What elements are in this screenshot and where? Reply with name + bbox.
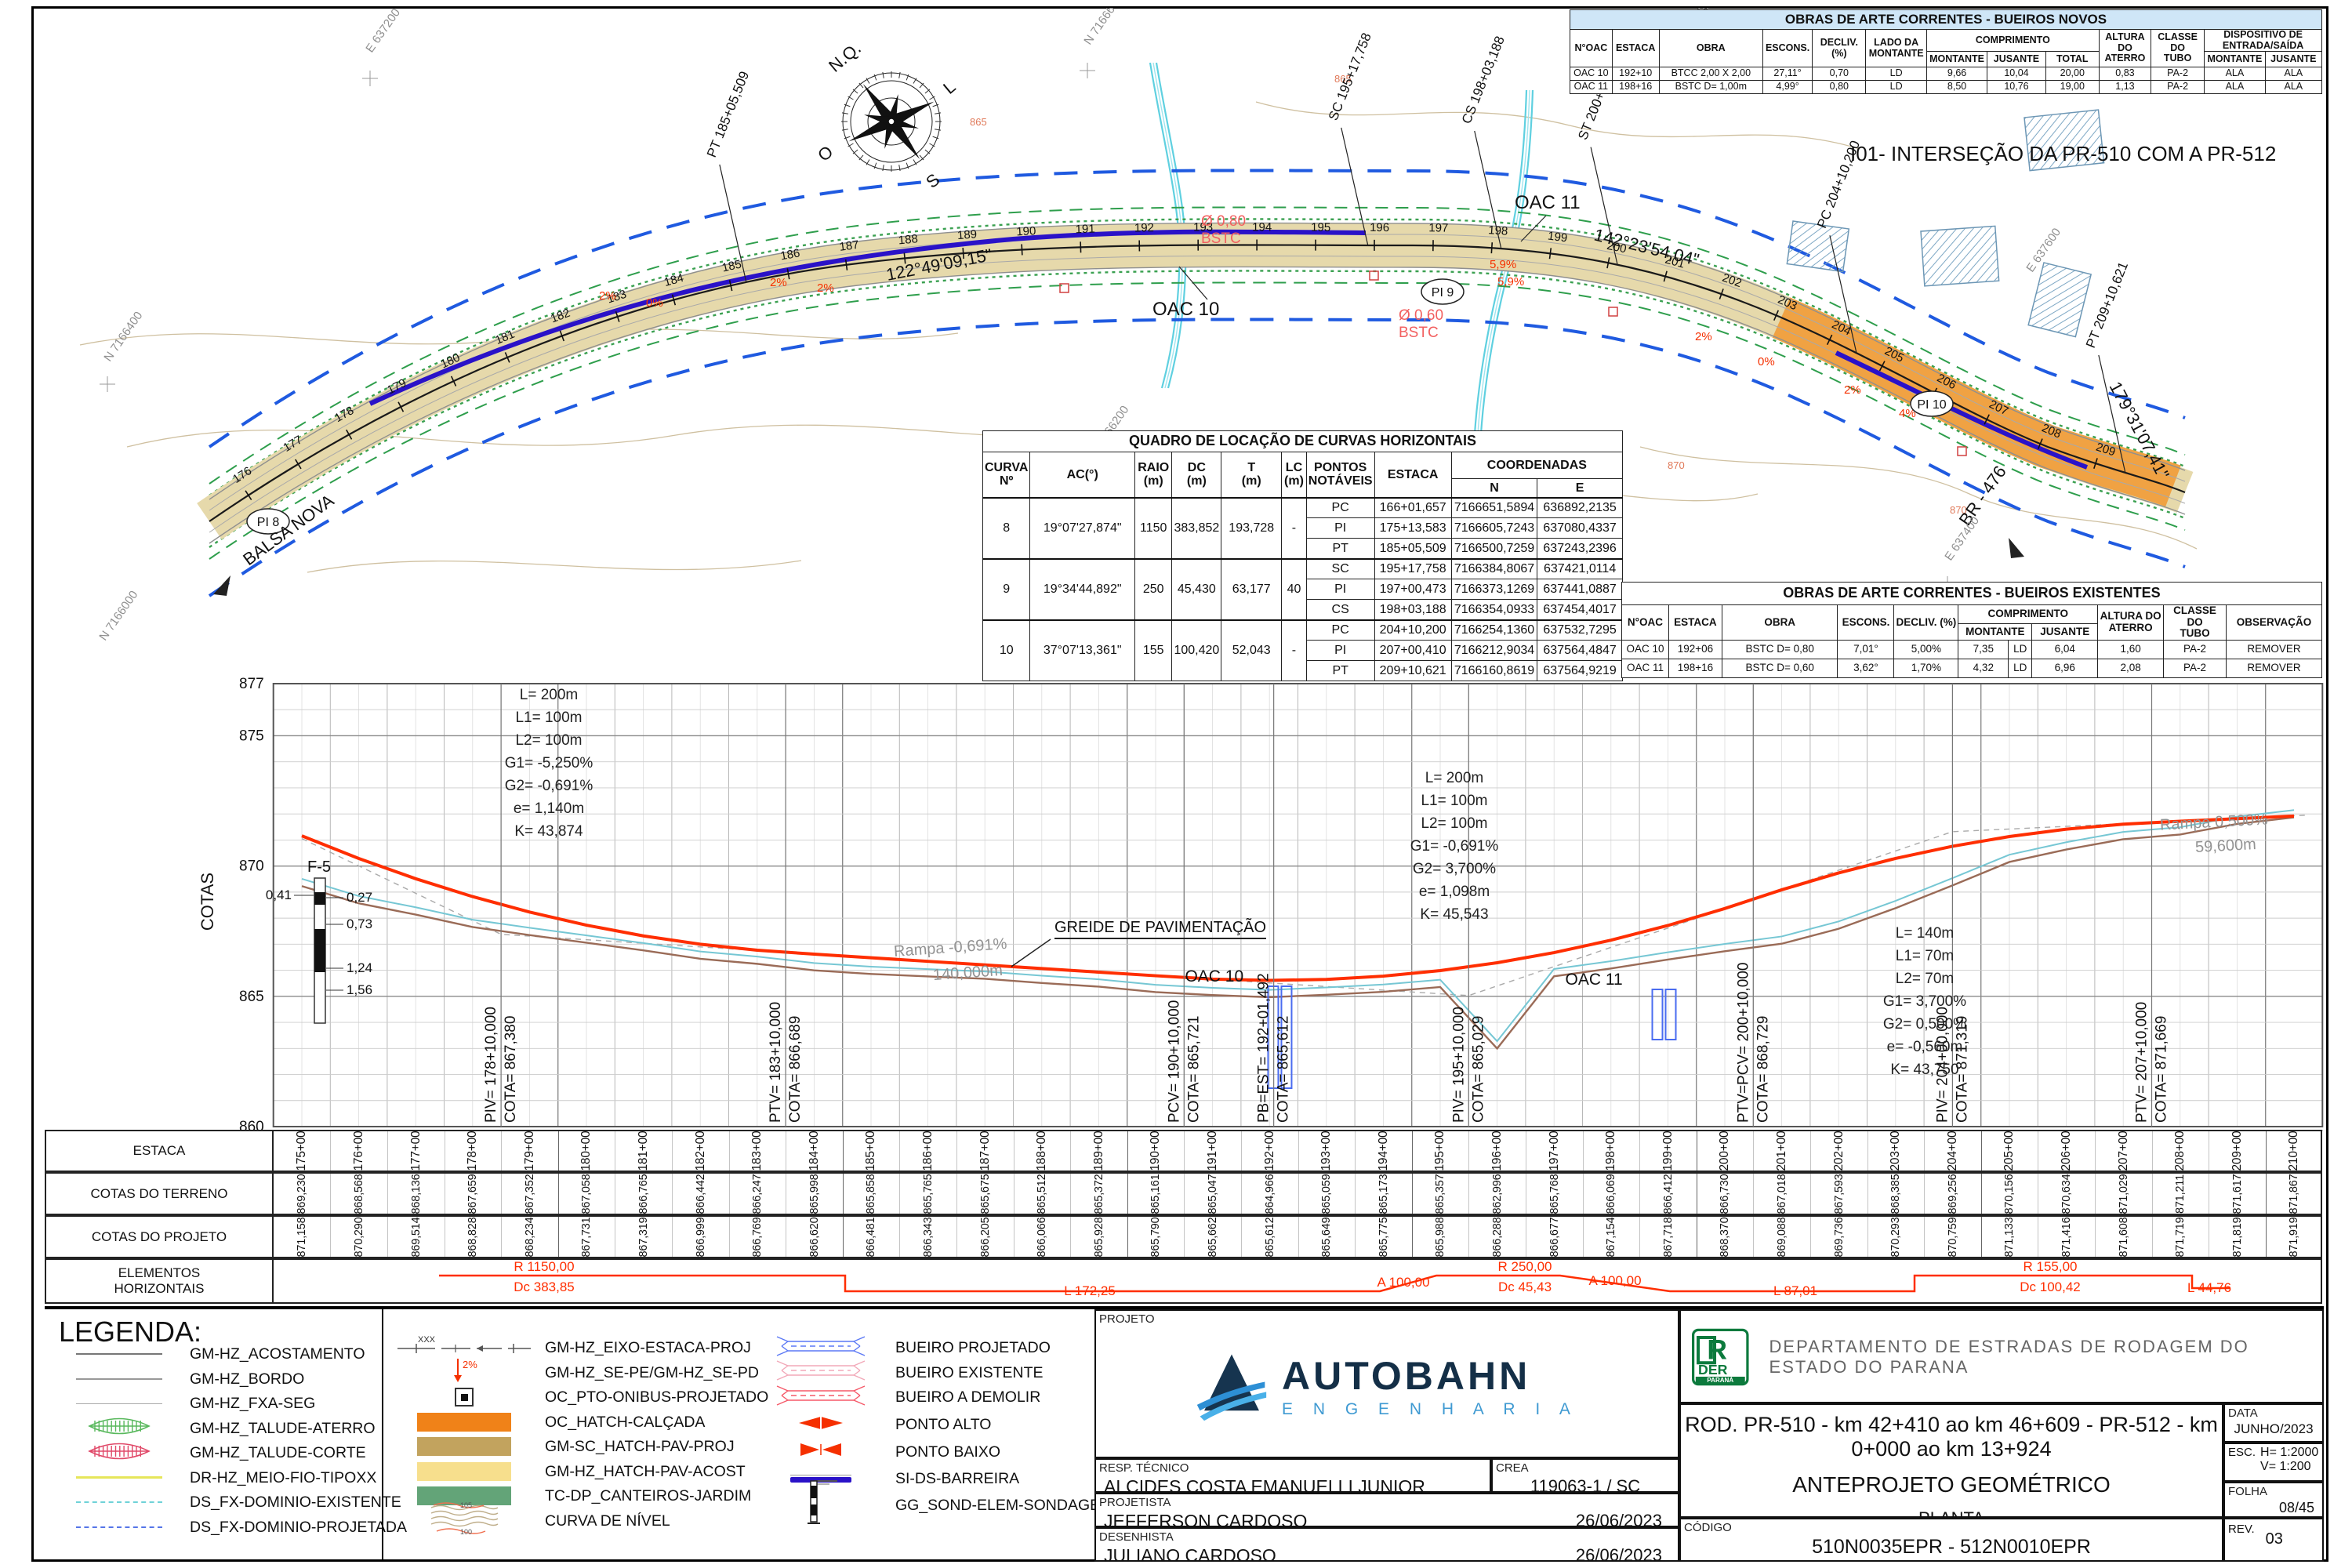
projeto-value: 866,999 [695,1217,707,1257]
terreno-value: 866,442 [695,1174,707,1214]
terreno-value: 865,858 [865,1174,877,1214]
swatch-orange-icon [417,1413,511,1432]
dept-name: DEPARTAMENTO DE ESTRADAS DE RODAGEM DO E… [1769,1337,2322,1377]
vertical-curve-block: L= 140mL1= 70mL2= 70mG1= 3,700%G2= 0,500… [1838,922,2011,1081]
estaca-value: 184+00 [808,1131,822,1171]
terreno-value: 868,136 [410,1174,423,1214]
projeto-value: 869,736 [1833,1217,1846,1257]
vc-line: L1= 100m [463,706,635,729]
vpoint-cota: COTA= 867,380 [503,1016,519,1123]
legend-item-label: GM-HZ_TALUDE-ATERRO [190,1420,376,1438]
elementos-horizontais-diagram: R 1150,00Dc 383,85L 172,25A 100,00R 250,… [274,1258,2322,1304]
vc-line: G1= 3,700% [1838,990,2011,1013]
borehole-depth: 0,41 [266,887,292,902]
vc-line: G1= -5,250% [463,752,635,775]
projeto-value: 865,790 [1149,1217,1162,1257]
vc-line: K= 43,874 [463,820,635,843]
estaca-value: 205+00 [2002,1131,2016,1171]
estaca-value: 177+00 [409,1131,423,1171]
data-value: JUNHO/2023 [2225,1421,2322,1437]
desenhista-date: 26/06/2023 [1576,1545,1678,1566]
esc-cell: ESC. H= 1:2000V= 1:200 [2223,1443,2324,1482]
terreno-value: 871,211 [2174,1174,2187,1214]
vc-line: L1= 100m [1368,789,1541,812]
profile-ytick: 865 [239,989,264,1005]
estaca-value: 185+00 [864,1131,878,1171]
projeto-value: 869,514 [410,1217,423,1257]
projeto-value: 866,677 [1548,1217,1561,1257]
projeto-value: 866,066 [1036,1217,1048,1257]
legend-item-label: GM-HZ_ACOSTAMENTO [190,1345,365,1363]
estaca-value: 210+00 [2287,1131,2301,1171]
terreno-value: 871,029 [2118,1174,2130,1214]
projeto-value: 867,319 [637,1217,650,1257]
projeto-value: 868,234 [524,1217,536,1257]
vpoint-cota: COTA= 868,729 [1755,1016,1771,1123]
terreno-value: 865,372 [1093,1174,1105,1214]
terreno-value: 869,230 [296,1174,308,1214]
vc-line: e= -0,560m [1838,1036,2011,1058]
desenhista-label: DESENHISTA [1096,1529,1678,1545]
vc-line: G2= -0,691% [463,775,635,797]
swatch-tan-icon [417,1437,511,1456]
svg-text:DER: DER [1698,1362,1728,1377]
crea-label: CREA [1493,1460,1678,1476]
talude-green-icon [85,1416,153,1440]
estaca-value: 209+00 [2230,1131,2245,1171]
codigo-value: 510N0035EPR - 512N0010EPR [1681,1536,2222,1559]
estaca-value: 208+00 [2173,1131,2187,1171]
svg-text:PARANÁ: PARANÁ [1707,1377,1733,1384]
projeto-value: 871,608 [2118,1217,2130,1257]
terreno-value: 869,256 [1947,1174,1959,1214]
terreno-value: 867,352 [524,1174,536,1214]
estaca-value: 182+00 [694,1131,708,1171]
estaca-value: 186+00 [921,1131,935,1171]
legend-item-label: GM-HZ_SE-PE/GM-HZ_SE-PD [545,1364,759,1382]
terreno-value: 866,247 [751,1174,764,1214]
terreno-value: 865,768 [1548,1174,1561,1214]
svg-text:2%: 2% [463,1359,477,1370]
terreno-value: 864,966 [1264,1174,1276,1214]
projeto-value: 866,205 [979,1217,992,1257]
projeto-value: 868,828 [466,1217,479,1257]
rev-value: 03 [2266,1530,2283,1548]
projeto-value: 871,719 [2174,1217,2187,1257]
culvert-blue-icon [774,1335,868,1361]
projeto-value: 866,769 [751,1217,764,1257]
estaca-value: 175+00 [295,1131,309,1171]
projeto-value: 866,343 [922,1217,935,1257]
estaca-value: 196+00 [1490,1131,1504,1171]
terreno-value: 866,730 [1719,1174,1731,1214]
legend-item-label: OC_PTO-ONIBUS-PROJETADO [545,1388,768,1406]
estaca-value: 188+00 [1035,1131,1049,1171]
grade-row-band: 871,158870,290869,514868,828868,234867,7… [274,1215,2322,1258]
swatch-lightyellow-icon [417,1462,511,1481]
esc-label: ESC. [2228,1446,2256,1474]
vertical-curve-block: L= 200mL1= 100mL2= 100mG1= -5,250%G2= -0… [463,684,635,843]
estaca-value: 179+00 [523,1131,537,1171]
codigo-label: CÓDIGO [1681,1519,2222,1536]
borehole-depth: 0,73 [347,916,372,931]
folha-cell: FOLHA 08/45 [2223,1482,2324,1518]
projeto-value: 865,662 [1207,1217,1219,1257]
ramp-length: 59,600m [2194,836,2256,857]
terreno-value: 866,069 [1605,1174,1617,1214]
autobahn-logo: AUTOBAHN E N G E N H A R I A [1096,1327,1678,1445]
sondagem-icon [803,1478,839,1532]
estaca-value: 187+00 [978,1131,993,1171]
projeto-value: 867,731 [580,1217,593,1257]
projeto-value: 868,370 [1719,1217,1731,1257]
vpoint-station: PIV= 195+10,000 [1450,1007,1467,1123]
elemento-label: R 155,00 [2024,1259,2078,1274]
vpoint-cota: COTA= 866,689 [787,1016,804,1123]
projeto-value: 866,481 [865,1217,877,1257]
projeto-value: 867,154 [1605,1217,1617,1257]
legend-item-label: GM-HZ_HATCH-PAV-ACOST [545,1463,746,1481]
talude-red-icon [85,1441,153,1465]
elemento-label: L 44,76 [2187,1280,2231,1295]
estaca-value: 200+00 [1718,1131,1732,1171]
vc-line: L= 200m [1368,767,1541,789]
terreno-value: 865,161 [1149,1174,1162,1214]
grade-row-band: 869,230868,568868,136867,659867,352867,0… [274,1172,2322,1215]
data-cell: DATA JUNHO/2023 [2223,1403,2324,1443]
vc-line: L= 200m [463,684,635,706]
legend-item-label: PONTO BAIXO [895,1443,1000,1461]
estaca-value: 194+00 [1377,1131,1391,1171]
estaca-value: 192+00 [1263,1131,1277,1171]
rev-label: REV. [2228,1523,2255,1548]
pt-alto-icon [789,1416,852,1434]
line-yellow-icon [76,1476,162,1479]
autobahn-logo-icon [1196,1350,1268,1422]
terreno-value: 871,617 [2231,1174,2244,1214]
line-gray2-icon [76,1378,162,1380]
terreno-value: 865,675 [979,1174,992,1214]
terreno-value: 868,568 [353,1174,365,1214]
company-name: AUTOBAHN [1282,1353,1578,1399]
borehole: F-50,410,270,731,241,56 [266,858,372,1023]
elemento-label: L 172,25 [1064,1283,1116,1298]
pt-baixo-icon [789,1443,852,1461]
svg-text:100: 100 [460,1528,472,1536]
projeto-value: 865,928 [1093,1217,1105,1257]
borehole-depth: 1,24 [347,960,372,975]
profile-ylabel: COTAS [198,873,217,931]
legend-item-label: GG_SOND-ELEM-SONDAGEM [895,1497,1112,1515]
estaca-value: 183+00 [750,1131,764,1171]
projeto-value: 870,759 [1947,1217,1959,1257]
greide-label: GREIDE DE PAVIMENTAÇÃO [1054,919,1266,939]
profile-ytick: 870 [239,858,264,875]
culvert-red-icon [774,1385,868,1410]
dashdot-cyan-icon [76,1501,162,1503]
elemento-label: Dc 100,42 [2020,1279,2081,1294]
projeto-value: 865,649 [1320,1217,1333,1257]
estaca-value: 189+00 [1092,1131,1106,1171]
doc-title: ANTEPROJETO GEOMÉTRICO [1681,1472,2222,1497]
culvert-pink-icon [774,1359,868,1385]
title-block: PROJETO AUTOBAHN E N G E N H A R I A RES… [1094,1306,2324,1562]
desenhista-name: JULIANO CARDOSO [1096,1545,1276,1566]
dashdot-blue-icon [76,1526,162,1528]
terreno-value: 865,998 [808,1174,821,1214]
vc-line: G2= 3,700% [1368,858,1541,880]
terreno-value: 871,867 [2288,1174,2300,1214]
projeto-value: 869,088 [1776,1217,1788,1257]
legend-item-label: BUEIRO EXISTENTE [895,1364,1044,1382]
estaca-value: 206+00 [2060,1131,2074,1171]
profile-ytick: 875 [239,728,264,744]
legend-item-label: GM-HZ_EIXO-ESTACA-PROJ [545,1339,751,1357]
desenhista-cell: DESENHISTA JULIANO CARDOSO26/06/2023 [1094,1527,1679,1562]
terreno-value: 865,173 [1377,1174,1390,1214]
projeto-value: 866,620 [808,1217,821,1257]
profile-oac-label: OAC 11 [1566,971,1623,989]
crea-cell: CREA 119063-1 / SC [1491,1458,1679,1493]
vpoint-cota: COTA= 865,721 [1185,1016,1202,1123]
vpoint-station: PTV= 207+10,000 [2134,1002,2151,1123]
terreno-value: 866,412 [1662,1174,1675,1214]
projeto-value: 871,819 [2231,1217,2244,1257]
estaca-value: 195+00 [1433,1131,1447,1171]
terreno-value: 865,512 [1036,1174,1048,1214]
vc-line: K= 45,543 [1368,903,1541,926]
rev-cell: REV. 03 [2223,1518,2324,1562]
codigo-cell: CÓDIGO 510N0035EPR - 512N0010EPR [1679,1518,2223,1562]
estaca-value: 176+00 [352,1131,366,1171]
vpoint-cota: COTA= 871,669 [2154,1016,2170,1123]
vc-line: K= 43,750 [1838,1058,2011,1081]
dept-cell: R DER PARANÁ DEPARTAMENTO DE ESTRADAS DE… [1679,1309,2324,1403]
terreno-value: 866,765 [637,1174,650,1214]
projeto-value: 867,718 [1662,1217,1675,1257]
terreno-value: 867,058 [580,1174,593,1214]
projeto-value: 865,775 [1377,1217,1390,1257]
legend-item-label: DS_FX-DOMINIO-PROJETADA [190,1519,407,1537]
terreno-value: 865,059 [1320,1174,1333,1214]
vc-line: G1= -0,691% [1368,835,1541,858]
vpoint-station: PTV=PCV= 200+10,000 [1735,963,1751,1123]
resp-label: RESP. TÉCNICO [1096,1460,1490,1476]
terreno-value: 868,385 [1889,1174,1902,1214]
elemento-label: R 250,00 [1498,1259,1552,1274]
terreno-value: 867,659 [466,1174,479,1214]
estaca-value: 178+00 [466,1131,480,1171]
legend-item-label: GM-SC_HATCH-PAV-PROJ [545,1438,735,1456]
legend: LEGENDA: GM-HZ_ACOSTAMENTOGM-HZ_BORDOGM-… [45,1306,1094,1562]
legend-item-label: DS_FX-DOMINIO-EXISTENTE [190,1494,401,1512]
profile-oac-label: OAC 10 [1185,967,1243,985]
legend-item-label: PONTO ALTO [895,1416,991,1434]
contours-icon: 105100 [427,1501,502,1540]
vpoint-station: PIV= 178+10,000 [483,1007,499,1123]
line-thin-icon [76,1403,162,1404]
estaca-value: 198+00 [1604,1131,1618,1171]
legend-item-label: BUEIRO PROJETADO [895,1339,1051,1357]
legend-item-label: BUEIRO A DEMOLIR [895,1388,1040,1406]
terreno-value: 870,156 [2003,1174,2016,1214]
vc-line: G2= 0,500% [1838,1013,2011,1036]
estaca-value: 193+00 [1319,1131,1334,1171]
busstop-icon [455,1388,474,1406]
vc-line: e= 1,140m [463,797,635,820]
elemento-label: Dc 45,43 [1498,1279,1552,1294]
terreno-value: 867,018 [1776,1174,1788,1214]
projetista-cell: PROJETISTA JEFFERSON CARDOSO26/06/2023 [1094,1493,1679,1527]
legend-item-label: GM-HZ_FXA-SEG [190,1395,315,1413]
projeto-label: PROJETO [1096,1311,1678,1327]
folha-label: FOLHA [2225,1483,2322,1500]
estaca-value: 204+00 [1946,1131,1960,1171]
vc-line: L1= 70m [1838,945,2011,967]
estaca-value: 181+00 [637,1131,651,1171]
vc-line: L2= 100m [463,729,635,752]
grade-row-label: ELEMENTOSHORIZONTAIS [45,1258,274,1304]
vpoint-station: PB=EST= 192+01,492 [1256,973,1272,1123]
resp-tecnico-cell: RESP. TÉCNICO ALCIDES COSTA EMANUELLI JU… [1094,1458,1491,1493]
der-logo: R DER PARANÁ [1692,1322,1749,1392]
projeto-value: 865,612 [1264,1217,1276,1257]
vertical-curve-block: L= 200mL1= 100mL2= 100mG1= -0,691%G2= 3,… [1368,767,1541,926]
legend-item-label: CURVA DE NÍVEL [545,1512,670,1530]
legend-item-label: SI-DS-BARREIRA [895,1470,1019,1488]
terreno-value: 865,357 [1434,1174,1446,1214]
projeto-value: 871,919 [2288,1217,2300,1257]
svg-text:XXX: XXX [418,1335,436,1345]
projeto-value: 870,290 [353,1217,365,1257]
drawing-sheet: 8658658708701761771781791801811821831841… [0,0,2352,1568]
projeto-value: 871,158 [296,1217,308,1257]
terreno-value: 862,996 [1491,1174,1504,1214]
elemento-label: A 100,00 [1377,1275,1429,1290]
projeto-value: 871,133 [2003,1217,2016,1257]
line-gray-icon [76,1353,162,1355]
terreno-value: 870,634 [2060,1174,2073,1214]
borehole-depth: 0,27 [347,890,372,905]
estaca-value: 203+00 [1889,1131,1903,1171]
vpoint-station: PTV= 183+10,000 [768,1002,784,1123]
data-label: DATA [2225,1405,2322,1421]
legend-item-label: DR-HZ_MEIO-FIO-TIPOXX [190,1469,376,1487]
grade-row-label: COTAS DO PROJETO [45,1215,274,1258]
projeto-value: 871,416 [2060,1217,2073,1257]
vpoint-cota: COTA= 865,612 [1276,1016,1292,1123]
grade-row-label: COTAS DO TERRENO [45,1172,274,1215]
estaca-value: 201+00 [1775,1131,1789,1171]
doc-title-cell: ROD. PR-510 - km 42+410 ao km 46+609 - P… [1679,1403,2223,1518]
projetista-label: PROJETISTA [1096,1494,1678,1511]
borehole-depth: 1,56 [347,982,372,997]
vc-line: L= 140m [1838,922,2011,945]
profile-ytick: 877 [239,676,264,692]
vc-line: e= 1,098m [1368,880,1541,903]
elemento-label: A 100,00 [1588,1273,1641,1288]
borehole-name: F-5 [307,858,331,876]
elemento-label: L 87,01 [1773,1283,1817,1298]
elemento-label: Dc 383,85 [514,1279,575,1294]
terreno-value: 865,047 [1207,1174,1219,1214]
legend-item-label: TC-DP_CANTEIROS-JARDIM [545,1487,751,1505]
vpoint-station: PCV= 190+10,000 [1166,1000,1182,1123]
projeto-cell: PROJETO AUTOBAHN E N G E N H A R I A [1094,1309,1679,1458]
arrow2-icon: 2% [441,1357,488,1388]
terreno-value: 867,593 [1833,1174,1846,1214]
folha-value: 08/45 [2225,1500,2322,1516]
vc-line: L2= 100m [1368,812,1541,835]
vpoint-cota: COTA= 865,029 [1470,1016,1486,1123]
grade-row-band: 175+00176+00177+00178+00179+00180+00181+… [274,1130,2322,1172]
esc-values: H= 1:2000V= 1:200 [2260,1446,2318,1474]
elemento-label: R 1150,00 [514,1259,574,1274]
svg-text:105: 105 [460,1501,472,1509]
vc-line: L2= 70m [1838,967,2011,990]
estaca-value: 191+00 [1206,1131,1220,1171]
terreno-value: 865,765 [922,1174,935,1214]
estaca-value: 197+00 [1548,1131,1562,1171]
legend-item-label: GM-HZ_TALUDE-CORTE [190,1444,366,1462]
grade-row-label: ESTACA [45,1130,274,1172]
legend-item-label: GM-HZ_BORDO [190,1370,304,1388]
estaca-value: 190+00 [1149,1131,1163,1171]
company-sub: E N G E N H A R I A [1282,1400,1578,1419]
estaca-value: 207+00 [2117,1131,2131,1171]
projeto-value: 870,293 [1889,1217,1902,1257]
estaca-value: 202+00 [1832,1131,1846,1171]
projeto-value: 866,288 [1491,1217,1504,1257]
estaca-value: 180+00 [579,1131,593,1171]
projeto-value: 865,988 [1434,1217,1446,1257]
estaca-value: 199+00 [1661,1131,1675,1171]
legend-item-label: OC_HATCH-CALÇADA [545,1414,705,1432]
road-title: ROD. PR-510 - km 42+410 ao km 46+609 - P… [1681,1413,2222,1461]
